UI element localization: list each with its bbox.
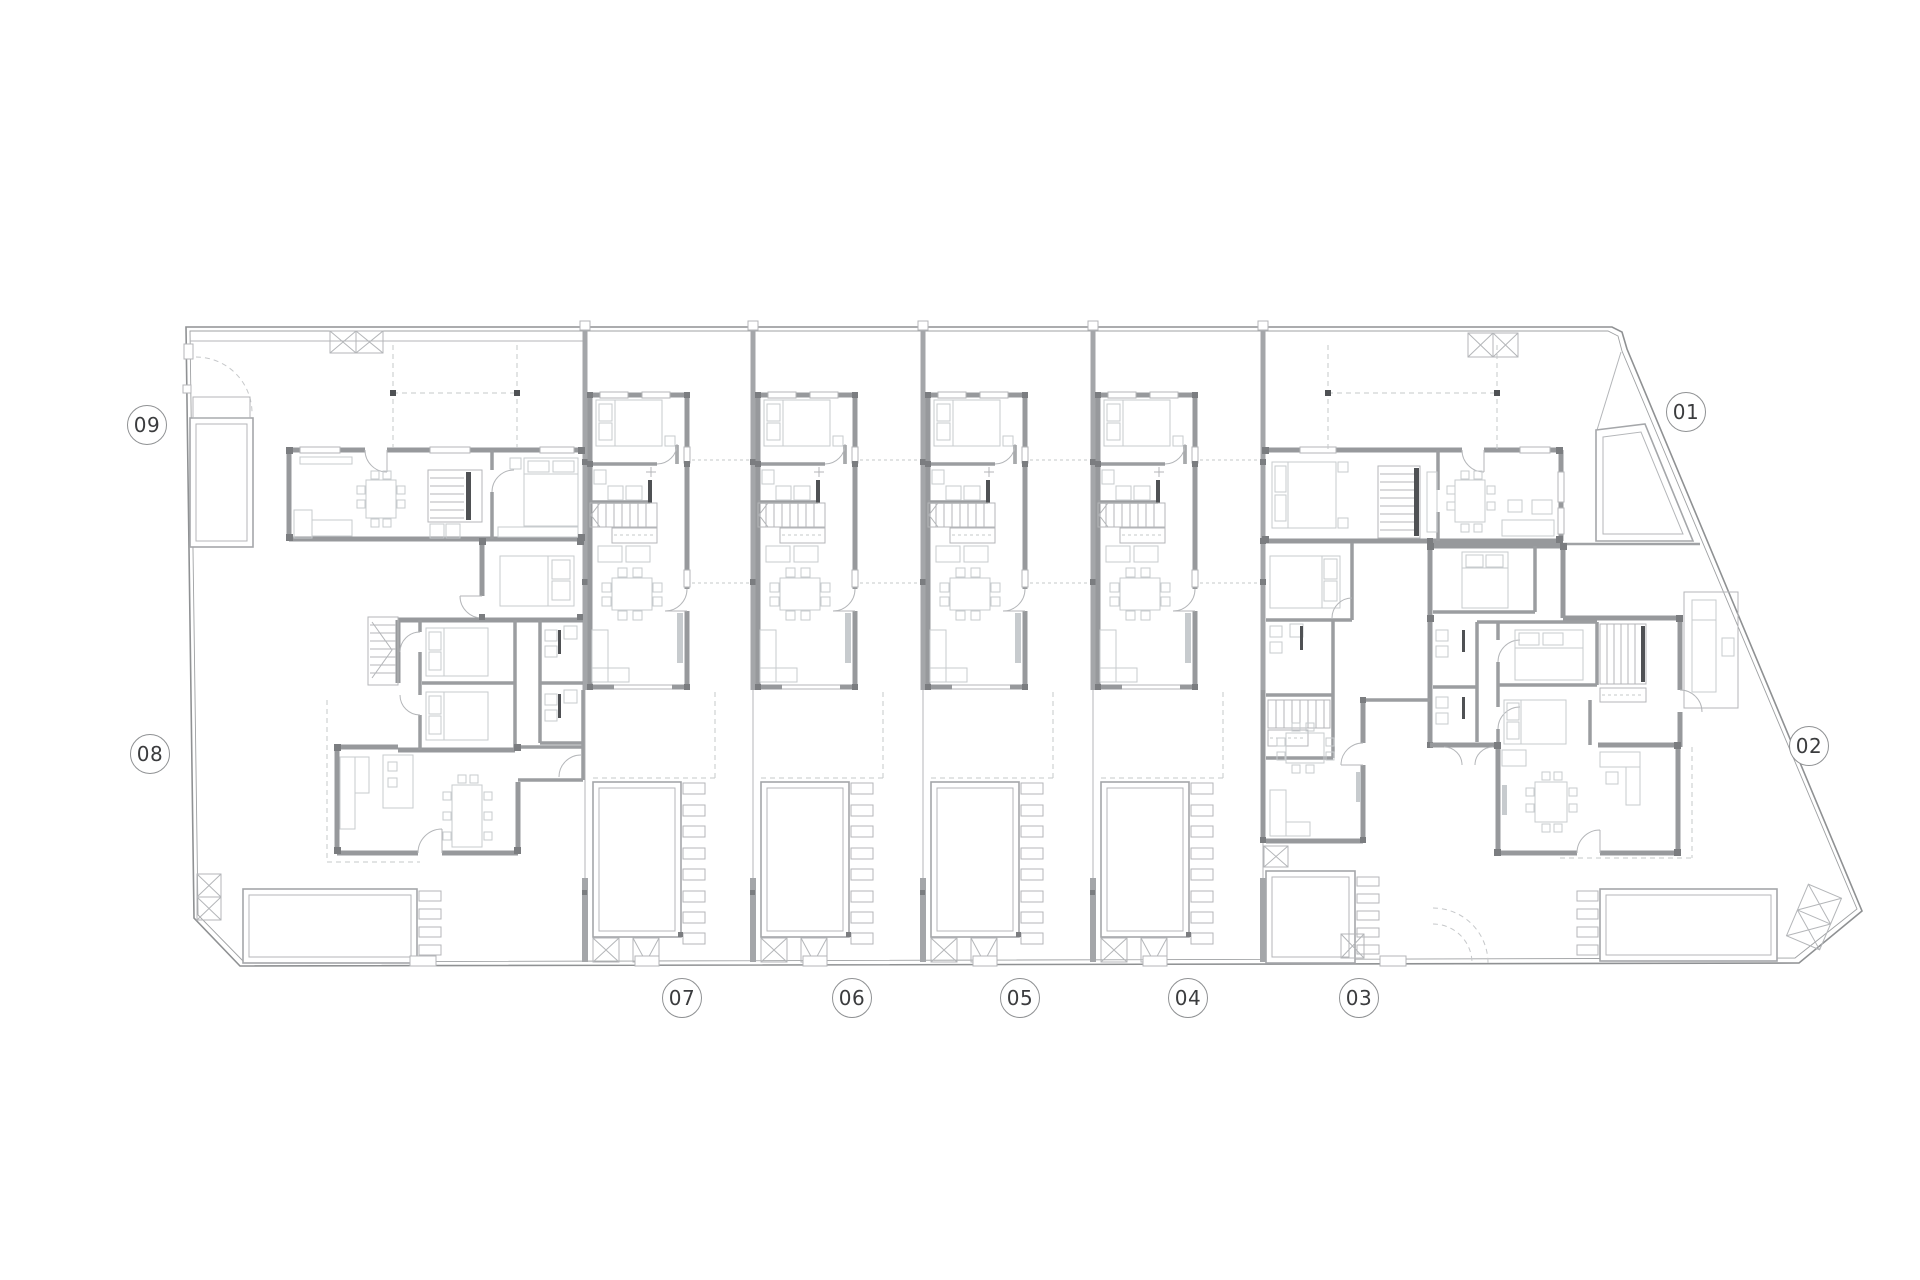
covered-terrace — [1684, 592, 1738, 708]
carport-pergola-dashed — [1325, 345, 1500, 450]
unit-label-06: 06 — [832, 978, 872, 1018]
entrance-gate-swing-arc — [196, 357, 252, 413]
dining-table — [1535, 782, 1567, 822]
hatch-box-left-boundary — [197, 874, 221, 920]
carport-pergola-dashed — [390, 345, 520, 448]
pool-unit-03 — [1266, 871, 1379, 963]
unit-label-07: 07 — [662, 978, 702, 1018]
unit-label-09: 09 — [127, 405, 167, 445]
bed — [1462, 552, 1508, 608]
boundary-post — [183, 385, 191, 393]
hatch-box-slant-boundary — [1786, 884, 1841, 950]
pool-unit-02 — [1577, 889, 1777, 961]
stairs — [428, 470, 482, 522]
unit-07-plan — [582, 392, 750, 966]
dining-table — [1455, 480, 1485, 522]
unit-label-04: 04 — [1168, 978, 1208, 1018]
stairs — [1600, 624, 1646, 702]
unit-label-08: 08 — [130, 734, 170, 774]
bed — [524, 458, 578, 526]
sofa — [1502, 520, 1554, 536]
unit-04-plan — [1090, 392, 1258, 966]
dining-table — [366, 480, 396, 518]
pool-unit-09 — [190, 397, 253, 547]
gate-post — [184, 344, 193, 359]
unit-05-plan — [920, 392, 1088, 966]
sofa — [1270, 790, 1286, 836]
floor-plan-drawing — [0, 0, 1920, 1280]
floor-plan-page: 090801020706050403 — [0, 0, 1920, 1280]
rooflight-hatch-box-right — [1468, 333, 1518, 357]
unit-02-plan — [1427, 543, 1842, 961]
bed — [1270, 556, 1340, 608]
unit-06-plan — [750, 392, 918, 966]
unit-label-02: 02 — [1789, 726, 1829, 766]
driveway-swing-arcs — [1433, 908, 1488, 963]
unit-label-01: 01 — [1666, 392, 1706, 432]
stairs — [1378, 466, 1420, 538]
pool-unit-08 — [243, 889, 441, 963]
unit-09-plan — [190, 345, 585, 547]
sofa — [340, 757, 355, 829]
unit-01-plan — [1262, 345, 1700, 544]
unit-label-05: 05 — [1000, 978, 1040, 1018]
dining-table — [452, 785, 482, 847]
bed — [1515, 630, 1583, 680]
rear-gate — [1380, 956, 1406, 966]
sofa — [1600, 752, 1640, 767]
pool-unit-01 — [1596, 424, 1693, 541]
unit-03-plan — [1260, 538, 1488, 966]
rear-gate — [410, 956, 436, 966]
stairs — [368, 617, 398, 685]
rooflight-hatch-box-left — [330, 331, 383, 353]
unit-label-03: 03 — [1339, 978, 1379, 1018]
unit-08-plan — [197, 538, 584, 966]
